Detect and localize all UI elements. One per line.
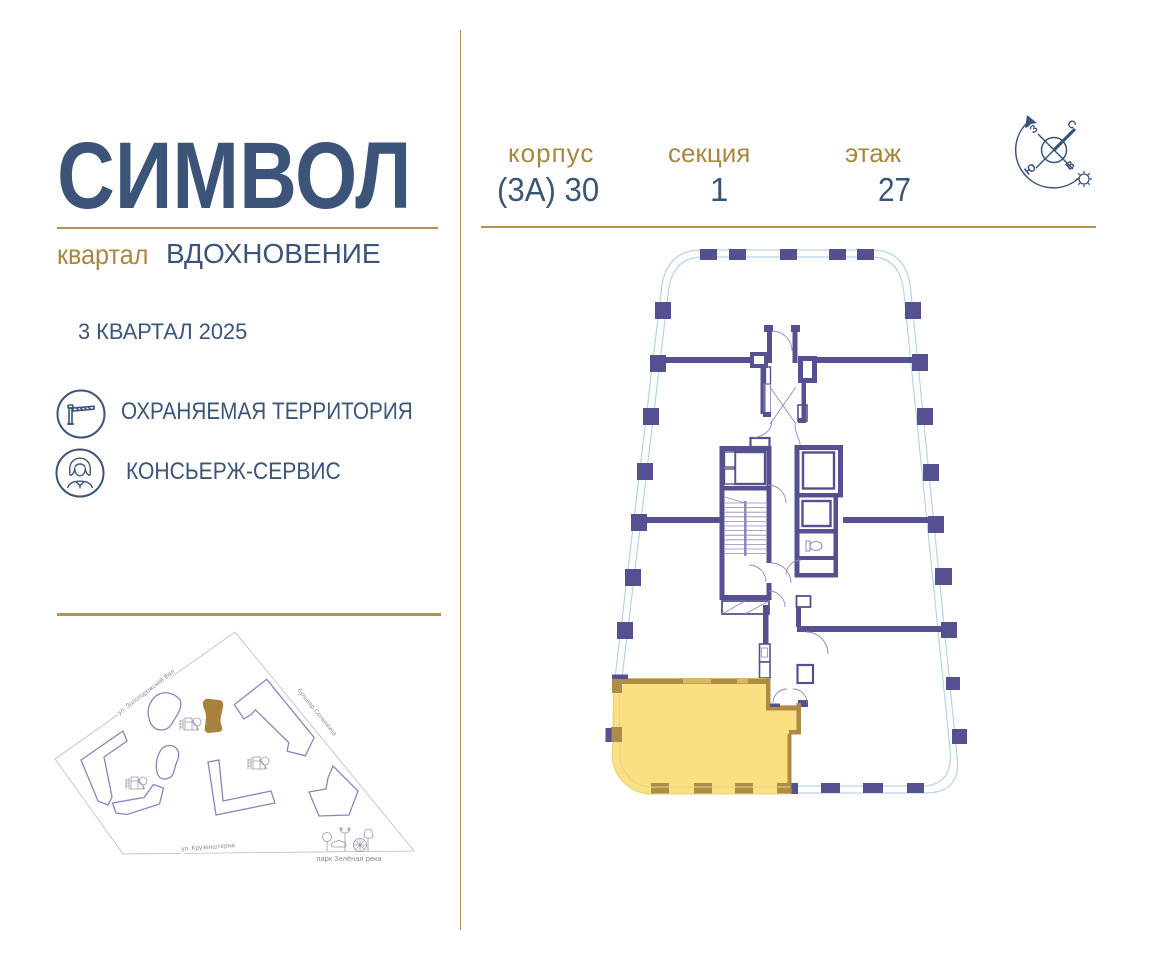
svg-text:ул. Крузенштерна: ул. Крузенштерна	[181, 842, 235, 853]
svg-text:С: С	[1065, 118, 1079, 132]
svg-text:В: В	[1064, 159, 1078, 173]
svg-text:парк Зелёная река: парк Зелёная река	[316, 854, 382, 863]
